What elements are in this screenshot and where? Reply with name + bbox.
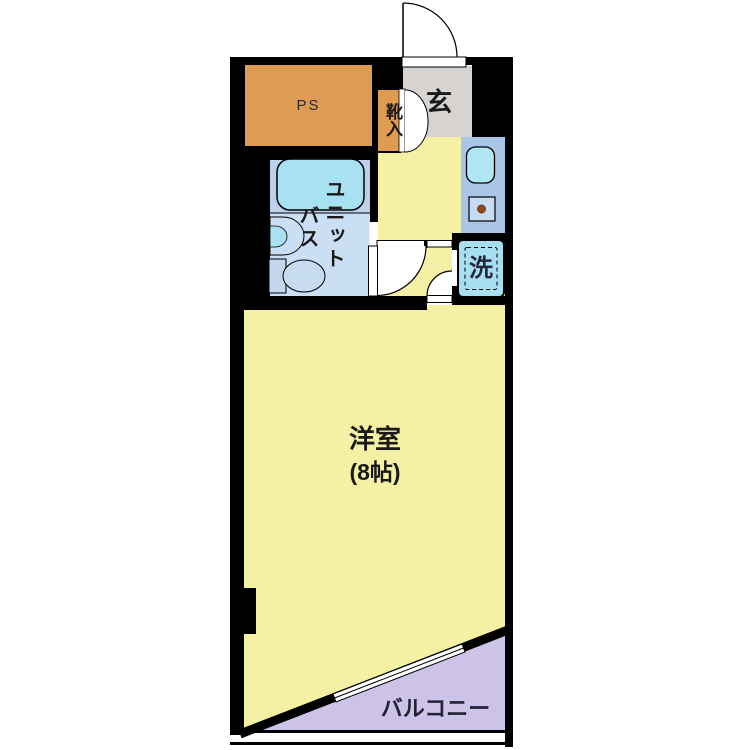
main-door-leaf (369, 246, 378, 296)
balcony-label: バルコニー (373, 696, 498, 722)
pillar (244, 588, 256, 634)
main-room-label: 洋室 (295, 424, 455, 454)
ps-label: PS (244, 63, 373, 147)
outer-bottom-line (230, 742, 513, 745)
unit-bath-label-right: ユニット (317, 179, 343, 279)
entrance-door-swing-arc (403, 3, 457, 57)
right-wall (505, 57, 513, 747)
floor-plan: PS 玄 靴入 ユニット バス 洗 洋室 (8帖) バルコニー (0, 0, 750, 750)
balcony-edge-line (244, 730, 506, 733)
washer-label: 洗 (458, 241, 504, 297)
bath-west-wall (230, 152, 270, 310)
entrance-label: 玄 (420, 87, 458, 117)
small-door-leaf (427, 296, 452, 303)
main-room-size-label: (8帖) (295, 458, 455, 486)
unit-bath-label-left: バス (291, 205, 317, 257)
shoe-cabinet-label: 靴入 (375, 88, 401, 152)
south-wall (244, 296, 427, 310)
kitchen-sink (467, 147, 495, 183)
shoe-top-block (373, 57, 403, 90)
entrance-door (402, 3, 466, 67)
entrance-door-sill (402, 57, 466, 67)
stove-burner-dot (477, 205, 485, 213)
